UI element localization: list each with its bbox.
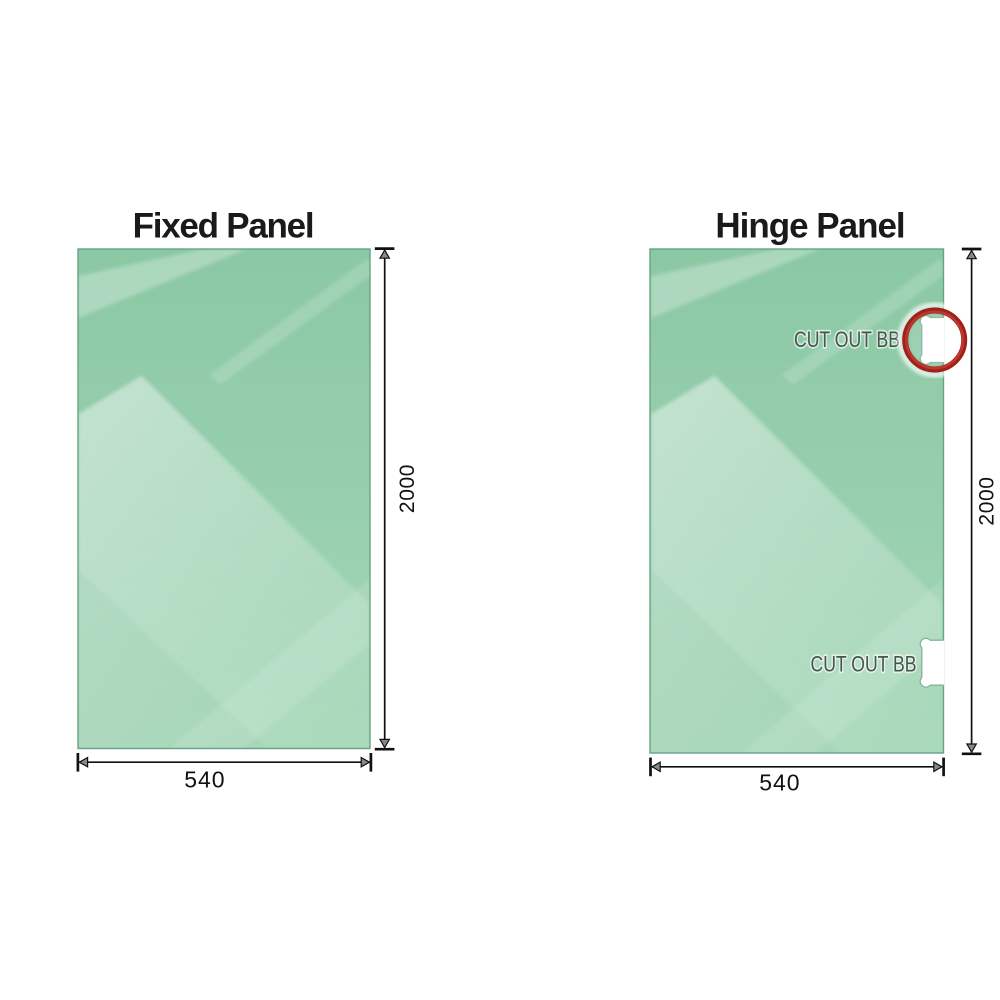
svg-text:CUT OUT BB: CUT OUT BB (794, 327, 900, 352)
svg-text:Fixed Panel: Fixed Panel (133, 207, 314, 246)
svg-text:2000: 2000 (975, 476, 998, 525)
svg-text:2000: 2000 (396, 464, 419, 513)
svg-text:Hinge Panel: Hinge Panel (715, 207, 904, 246)
svg-text:540: 540 (184, 766, 225, 792)
svg-text:540: 540 (759, 770, 800, 796)
svg-text:CUT OUT BB: CUT OUT BB (811, 651, 917, 676)
